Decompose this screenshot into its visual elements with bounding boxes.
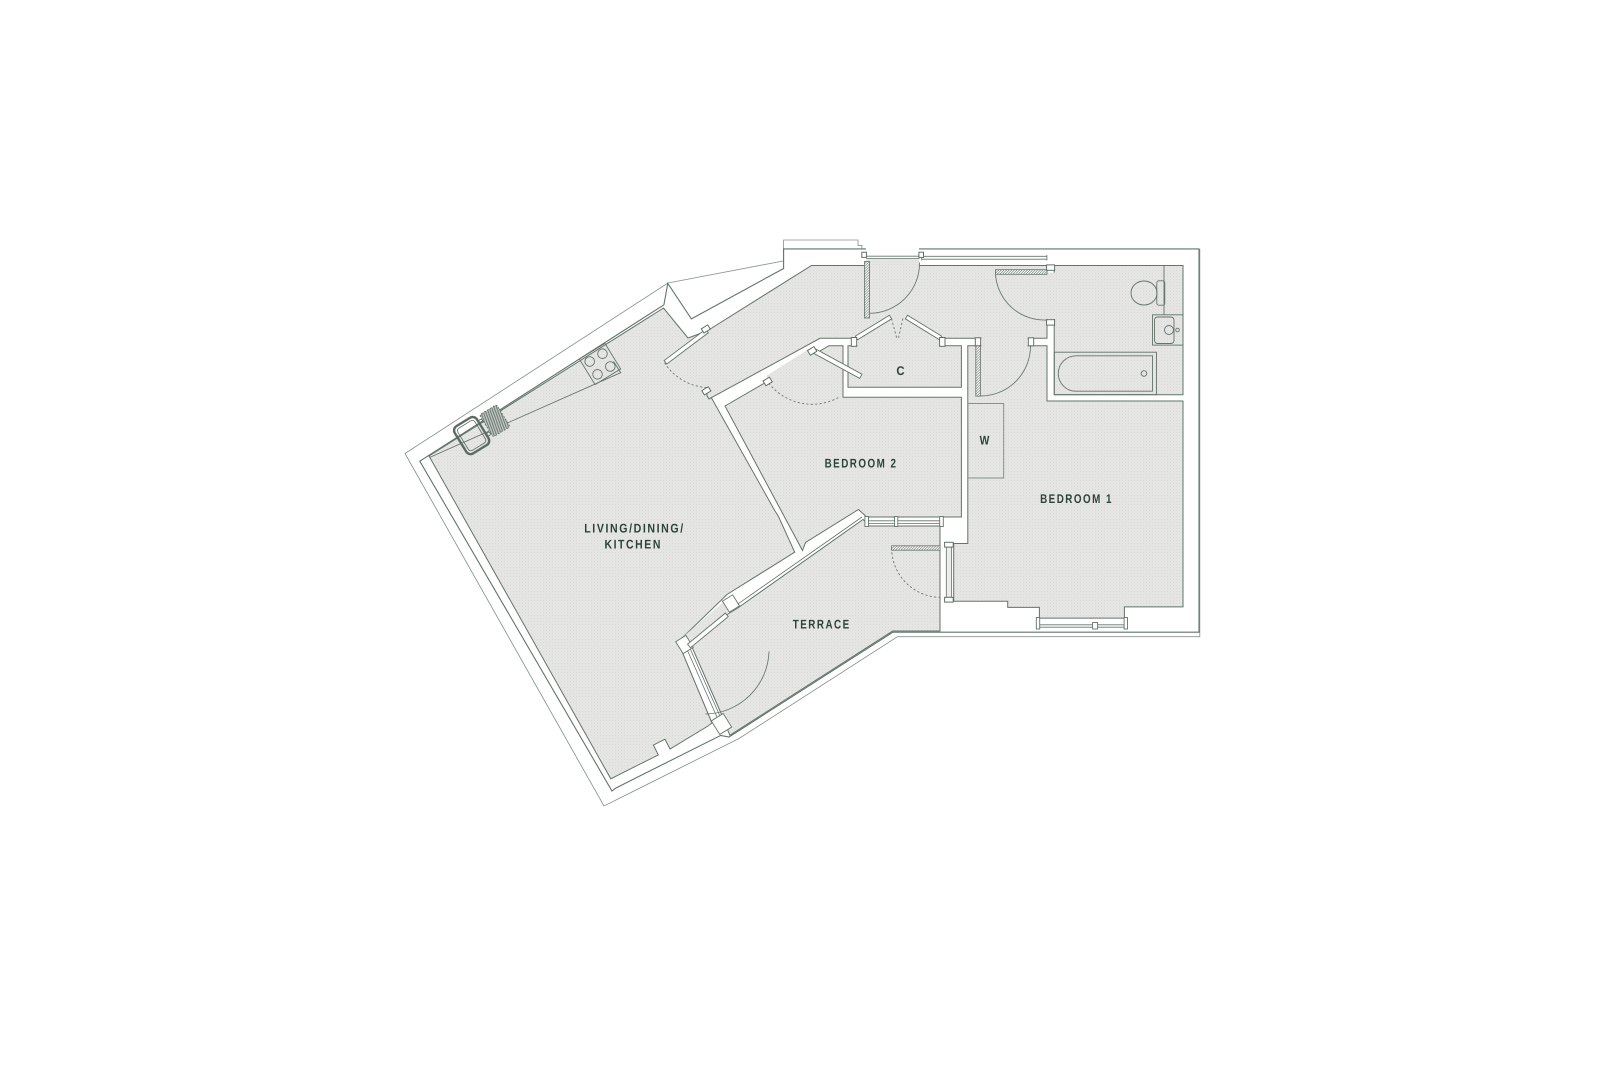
svg-text:LIVING/DINING/: LIVING/DINING/ — [584, 522, 685, 536]
svg-text:BEDROOM 2: BEDROOM 2 — [825, 457, 898, 471]
svg-text:BEDROOM 1: BEDROOM 1 — [1040, 492, 1113, 506]
svg-text:W: W — [980, 434, 991, 448]
svg-text:TERRACE: TERRACE — [793, 618, 851, 632]
svg-text:C: C — [896, 364, 906, 378]
svg-text:KITCHEN: KITCHEN — [604, 538, 662, 552]
